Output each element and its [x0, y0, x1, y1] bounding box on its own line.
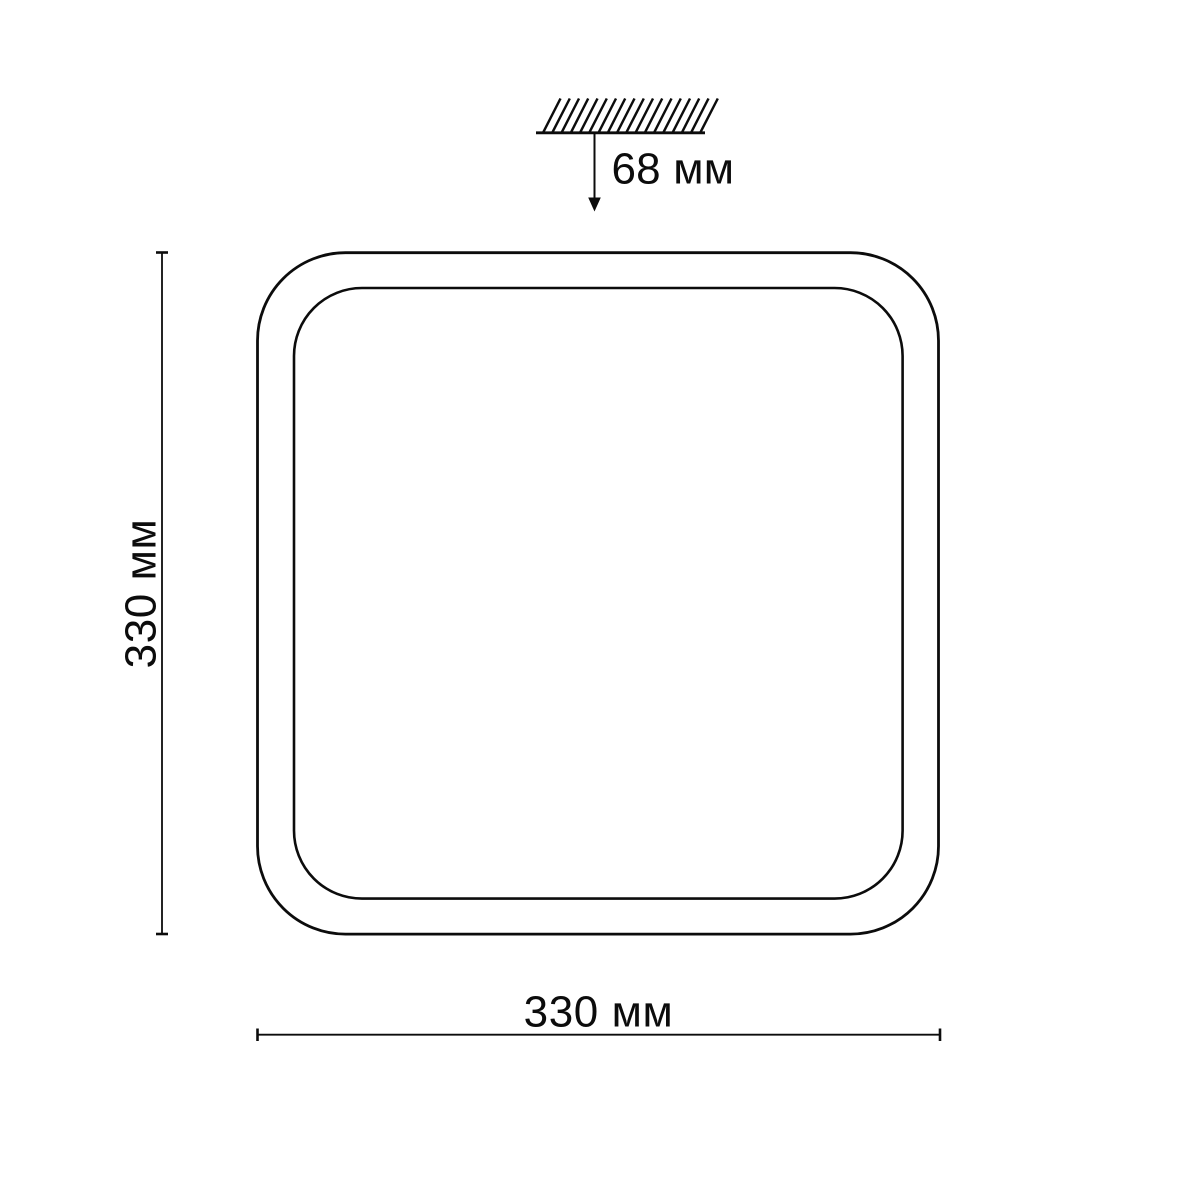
svg-text:330 мм: 330 мм [117, 519, 166, 669]
svg-text:68 мм: 68 мм [612, 144, 735, 193]
svg-text:330 мм: 330 мм [524, 988, 674, 1037]
